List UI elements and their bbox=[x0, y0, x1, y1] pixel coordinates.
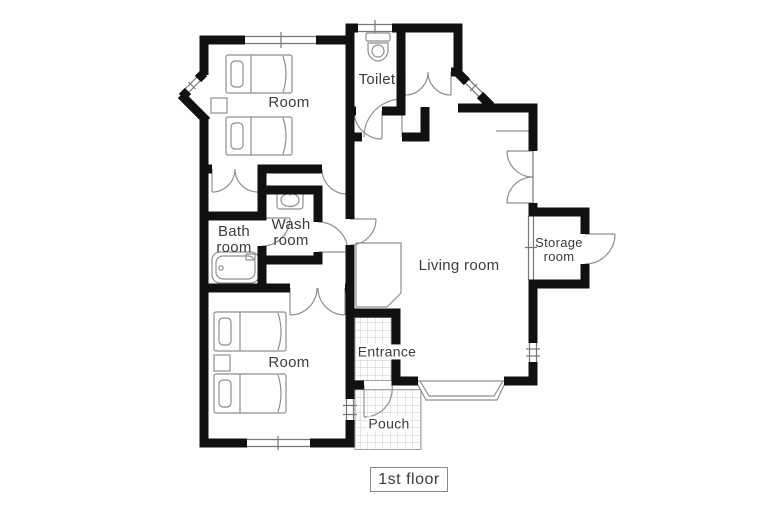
corridor-living-door-swing bbox=[350, 219, 376, 245]
window-living-right bbox=[526, 343, 540, 362]
room-label-washroom-line2: room bbox=[272, 233, 311, 249]
pillow-icon bbox=[231, 61, 243, 87]
room-label-washroom-line1: Wash bbox=[272, 217, 311, 233]
room-label-washroom: Wash room bbox=[272, 217, 311, 249]
cabinet bbox=[356, 243, 401, 307]
room-label-entrance: Entrance bbox=[357, 344, 417, 359]
room-label-top: Room bbox=[268, 95, 309, 111]
french-door-swing bbox=[507, 151, 533, 203]
nightstand-icon bbox=[214, 355, 230, 371]
floor-caption: 1st floor bbox=[378, 471, 439, 489]
nightstand-icon bbox=[211, 98, 227, 113]
room-top-door-swing bbox=[322, 169, 347, 194]
room-label-toilet: Toilet bbox=[359, 72, 396, 88]
bay-window bbox=[416, 381, 506, 400]
toilet-icon bbox=[366, 33, 390, 61]
hall-closet-door-swing bbox=[405, 72, 451, 95]
room-label-bathroom-line1: Bath bbox=[216, 224, 251, 240]
hall-living-door-swing bbox=[364, 99, 402, 137]
room-label-pouch: Pouch bbox=[367, 416, 410, 431]
room-label-living: Living room bbox=[419, 258, 500, 274]
bathtub-icon bbox=[212, 252, 259, 283]
closet-door-swing bbox=[212, 169, 258, 192]
floor-caption-box: 1st floor bbox=[370, 467, 448, 492]
room-label-bathroom-line2: room bbox=[216, 240, 251, 256]
floor-plan: Room Toilet Bath room Wash room Living r… bbox=[0, 0, 765, 510]
washroom-door-swing bbox=[318, 222, 348, 252]
storage-door-swing bbox=[585, 234, 615, 264]
pillow-icon bbox=[231, 123, 243, 149]
room-label-bottom: Room bbox=[268, 355, 309, 371]
room-label-bathroom: Bath room bbox=[216, 224, 251, 256]
window-room-top bbox=[245, 32, 316, 48]
window-room-bottom bbox=[247, 436, 310, 450]
room-label-storage-line1: Storage bbox=[535, 236, 583, 250]
pillow-icon bbox=[219, 318, 231, 345]
room-label-storage: Storage room bbox=[535, 236, 583, 264]
pillow-icon bbox=[219, 380, 231, 407]
room-bottom-door-swing bbox=[290, 288, 345, 315]
room-label-storage-line2: room bbox=[535, 250, 583, 264]
